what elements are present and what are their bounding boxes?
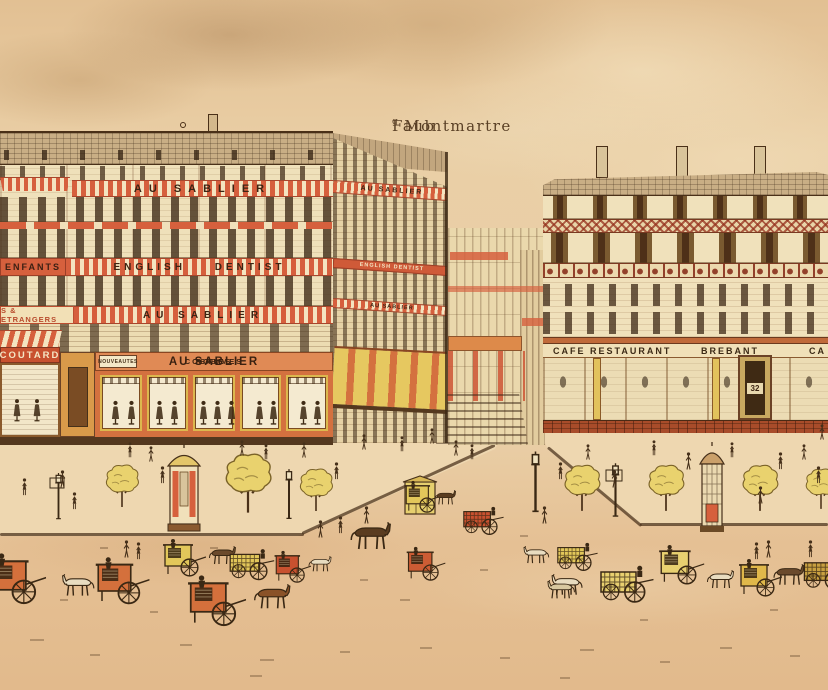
pilaster <box>712 358 720 420</box>
side-shopfront <box>331 346 452 414</box>
curb-line <box>640 523 828 526</box>
cafe-ground-floor <box>543 358 828 420</box>
enfants-sign: ENFANTS <box>0 258 66 276</box>
curb-line <box>0 533 304 536</box>
distant-awning <box>450 252 508 260</box>
roof-finial <box>180 122 186 128</box>
display-window <box>193 375 235 431</box>
chimney <box>754 146 766 178</box>
etrangers-sign: S & ETRANGERS <box>0 306 74 324</box>
distant-awning <box>448 286 544 292</box>
nouveautes-panel: NOUVEAUTES <box>99 355 137 368</box>
medallion-frieze <box>543 263 828 278</box>
shop-entrance <box>60 352 95 437</box>
display-window <box>286 375 328 431</box>
coutard-sign: COUTARD <box>0 347 60 363</box>
fascia-word-robes: ROBES <box>196 357 233 366</box>
cafe-restaurant-sign: CAFE RESTAURANT <box>553 346 671 356</box>
coutard-awning <box>0 330 62 347</box>
striped-awning <box>0 177 70 191</box>
au-sablier-banner-lower: AU SABLIER <box>74 306 333 324</box>
building-corner-edge <box>445 152 448 443</box>
lattice-frieze <box>543 219 828 233</box>
side-dentist-sign: ENGLISH DENTIST <box>333 258 451 276</box>
window-row <box>543 233 828 263</box>
coutard-display-window <box>0 363 60 437</box>
cafe-sign-cropped: CA <box>809 346 826 356</box>
chimney <box>596 146 608 178</box>
building-entrance: 32 <box>738 355 772 420</box>
lithograph-scene: AU SABLIER ENFANTS ENGLISH DENTIST S & E… <box>0 0 828 690</box>
balcony-awnings-row <box>0 222 333 229</box>
cafe-fascia: CAFE RESTAURANT BREBANT CA <box>543 344 828 358</box>
shopfront-base <box>0 437 333 445</box>
door-number: 32 <box>747 383 763 394</box>
roof-dormers <box>4 150 330 160</box>
attic-window-row <box>543 196 828 219</box>
artwork-title: FaubgMontmartre <box>392 117 572 141</box>
street-staircase <box>436 392 528 444</box>
window-row <box>0 197 333 222</box>
title-rest: Montmartre <box>404 117 512 135</box>
shopfront-display-windows <box>95 371 333 437</box>
main-window-floors <box>543 278 828 337</box>
distant-shopfront <box>448 336 522 351</box>
english-dentist-banner: ENGLISH DENTIST <box>66 258 333 276</box>
window-row <box>0 276 333 306</box>
cornice <box>543 337 828 344</box>
distant-awning <box>522 318 544 326</box>
chimney <box>676 146 688 178</box>
left-building-side-facade: AU SABLIER ENGLISH DENTIST AU SABLIER <box>333 138 447 443</box>
display-window <box>147 375 189 431</box>
side-au-sablier-banner: AU SABLIER <box>333 180 452 201</box>
au-sablier-banner: AU SABLIER <box>72 180 333 197</box>
distant-building <box>520 250 544 445</box>
window-row <box>0 229 333 258</box>
title-superscript: g <box>392 117 399 127</box>
display-window <box>240 375 282 431</box>
side-au-sablier-band: AU SABLIER <box>333 298 451 316</box>
display-window <box>100 375 142 431</box>
pilaster <box>593 358 601 420</box>
brick-base <box>543 420 828 433</box>
